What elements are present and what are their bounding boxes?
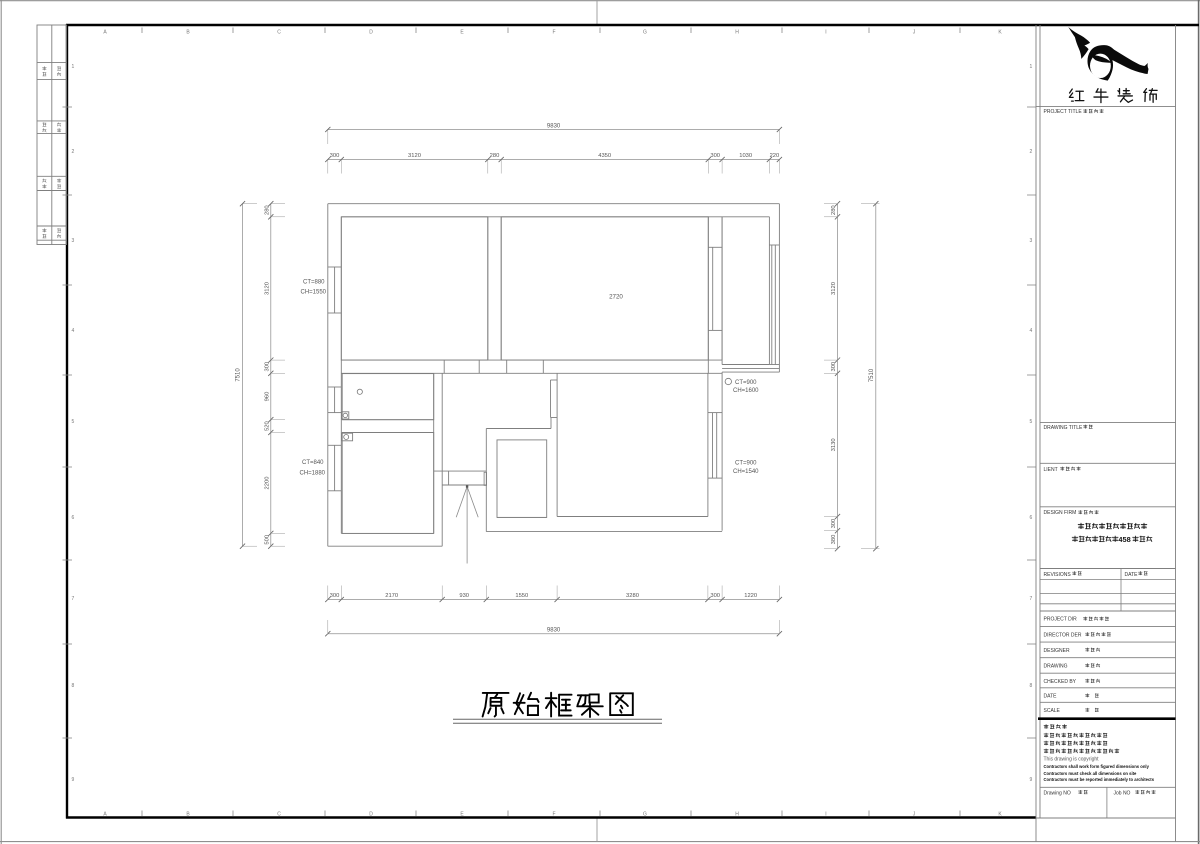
svg-text:SCALE: SCALE [1044,708,1061,714]
svg-text:220: 220 [770,153,780,159]
svg-text:6: 6 [1030,515,1033,521]
svg-text:CH=1540: CH=1540 [733,469,759,475]
svg-text:280: 280 [264,205,270,215]
svg-text:1: 1 [72,64,75,70]
svg-text:CH=1600: CH=1600 [733,388,759,394]
svg-text:Job NO: Job NO [1114,790,1131,796]
svg-text:5: 5 [72,419,75,425]
svg-text:1220: 1220 [744,593,757,599]
svg-text:280: 280 [490,153,500,159]
svg-text:4: 4 [1030,328,1033,334]
svg-text:2: 2 [72,149,75,155]
svg-text:300: 300 [330,153,340,159]
svg-text:I: I [825,30,826,36]
svg-text:CT=900: CT=900 [735,380,757,386]
svg-text:3120: 3120 [264,282,270,295]
svg-text:300: 300 [831,362,837,372]
svg-text:2200: 2200 [264,477,270,490]
svg-text:LIENT: LIENT [1044,467,1058,473]
svg-text:9830: 9830 [547,627,561,633]
svg-text:CT=880: CT=880 [303,279,325,285]
svg-text:1550: 1550 [515,593,528,599]
svg-text:458: 458 [1118,535,1130,544]
svg-text:7510: 7510 [869,368,875,382]
svg-text:DESIGNER: DESIGNER [1044,648,1071,654]
svg-text:H: H [735,30,739,36]
svg-text:PROJECT TITLE: PROJECT TITLE [1044,109,1083,115]
svg-text:930: 930 [459,593,469,599]
svg-text:CT=900: CT=900 [735,461,757,467]
svg-text:3130: 3130 [831,438,837,451]
svg-text:2: 2 [1030,149,1033,155]
svg-text:CH=1550: CH=1550 [301,290,327,296]
svg-text:4: 4 [72,328,75,334]
svg-text:3280: 3280 [626,593,639,599]
svg-text:1030: 1030 [739,153,752,159]
svg-text:520: 520 [264,421,270,431]
svg-text:I: I [825,812,826,818]
svg-text:3: 3 [1030,238,1033,244]
svg-text:9: 9 [1030,777,1033,783]
svg-text:DRAWING: DRAWING [1044,663,1068,669]
svg-text:1: 1 [1030,64,1033,70]
svg-text:G: G [643,812,647,818]
svg-text:8: 8 [1030,683,1033,689]
svg-text:Contractors must be reported i: Contractors must be reported immediately… [1044,777,1155,782]
svg-text:PROJECT DIR: PROJECT DIR [1044,617,1078,623]
svg-text:F: F [552,30,555,36]
svg-text:CHECKED BY: CHECKED BY [1044,679,1077,685]
svg-text:9830: 9830 [547,123,561,129]
svg-text:C: C [277,812,281,818]
svg-text:300: 300 [831,519,837,529]
svg-text:DATE: DATE [1044,694,1058,700]
svg-text:F: F [552,812,555,818]
svg-text:CT=840: CT=840 [302,460,324,466]
svg-text:DESIGN FIRM: DESIGN FIRM [1044,510,1077,516]
svg-text:9: 9 [72,777,75,783]
svg-text:380: 380 [831,535,837,545]
svg-text:7: 7 [1030,596,1033,602]
svg-text:2170: 2170 [385,593,398,599]
svg-text:3120: 3120 [831,282,837,295]
svg-text:2720: 2720 [609,294,623,301]
svg-text:DATE: DATE [1125,572,1139,578]
svg-text:G: G [643,30,647,36]
svg-text:8: 8 [72,683,75,689]
svg-text:Drawing NO: Drawing NO [1044,790,1071,796]
svg-text:C: C [277,30,281,36]
svg-text:7510: 7510 [236,368,242,382]
svg-text:CH=1880: CH=1880 [300,470,326,476]
svg-text:D: D [369,30,373,36]
svg-text:300: 300 [330,593,340,599]
svg-text:4350: 4350 [598,153,611,159]
svg-text:960: 960 [264,392,270,402]
svg-text:300: 300 [264,362,270,372]
svg-text:H: H [735,812,739,818]
svg-text:3120: 3120 [408,153,421,159]
svg-text:DRAWING TITLE: DRAWING TITLE [1044,425,1084,431]
svg-text:300: 300 [710,153,720,159]
svg-text:D: D [369,812,373,818]
svg-text:Contractors must check all dim: Contractors must check all dimensions on… [1044,771,1138,776]
svg-text:6: 6 [72,515,75,521]
svg-text:280: 280 [831,205,837,215]
svg-text:Contractors shall work form fi: Contractors shall work form figured dime… [1044,764,1150,769]
svg-text:300: 300 [710,593,720,599]
svg-text:This drawing is copyright: This drawing is copyright [1044,757,1100,763]
svg-text:7: 7 [72,596,75,602]
svg-text:3: 3 [72,238,75,244]
svg-text:REVISIONS: REVISIONS [1044,572,1072,578]
svg-text:500: 500 [264,535,270,545]
svg-text:5: 5 [1030,419,1033,425]
svg-text:DIRECTOR DER: DIRECTOR DER [1044,632,1082,638]
